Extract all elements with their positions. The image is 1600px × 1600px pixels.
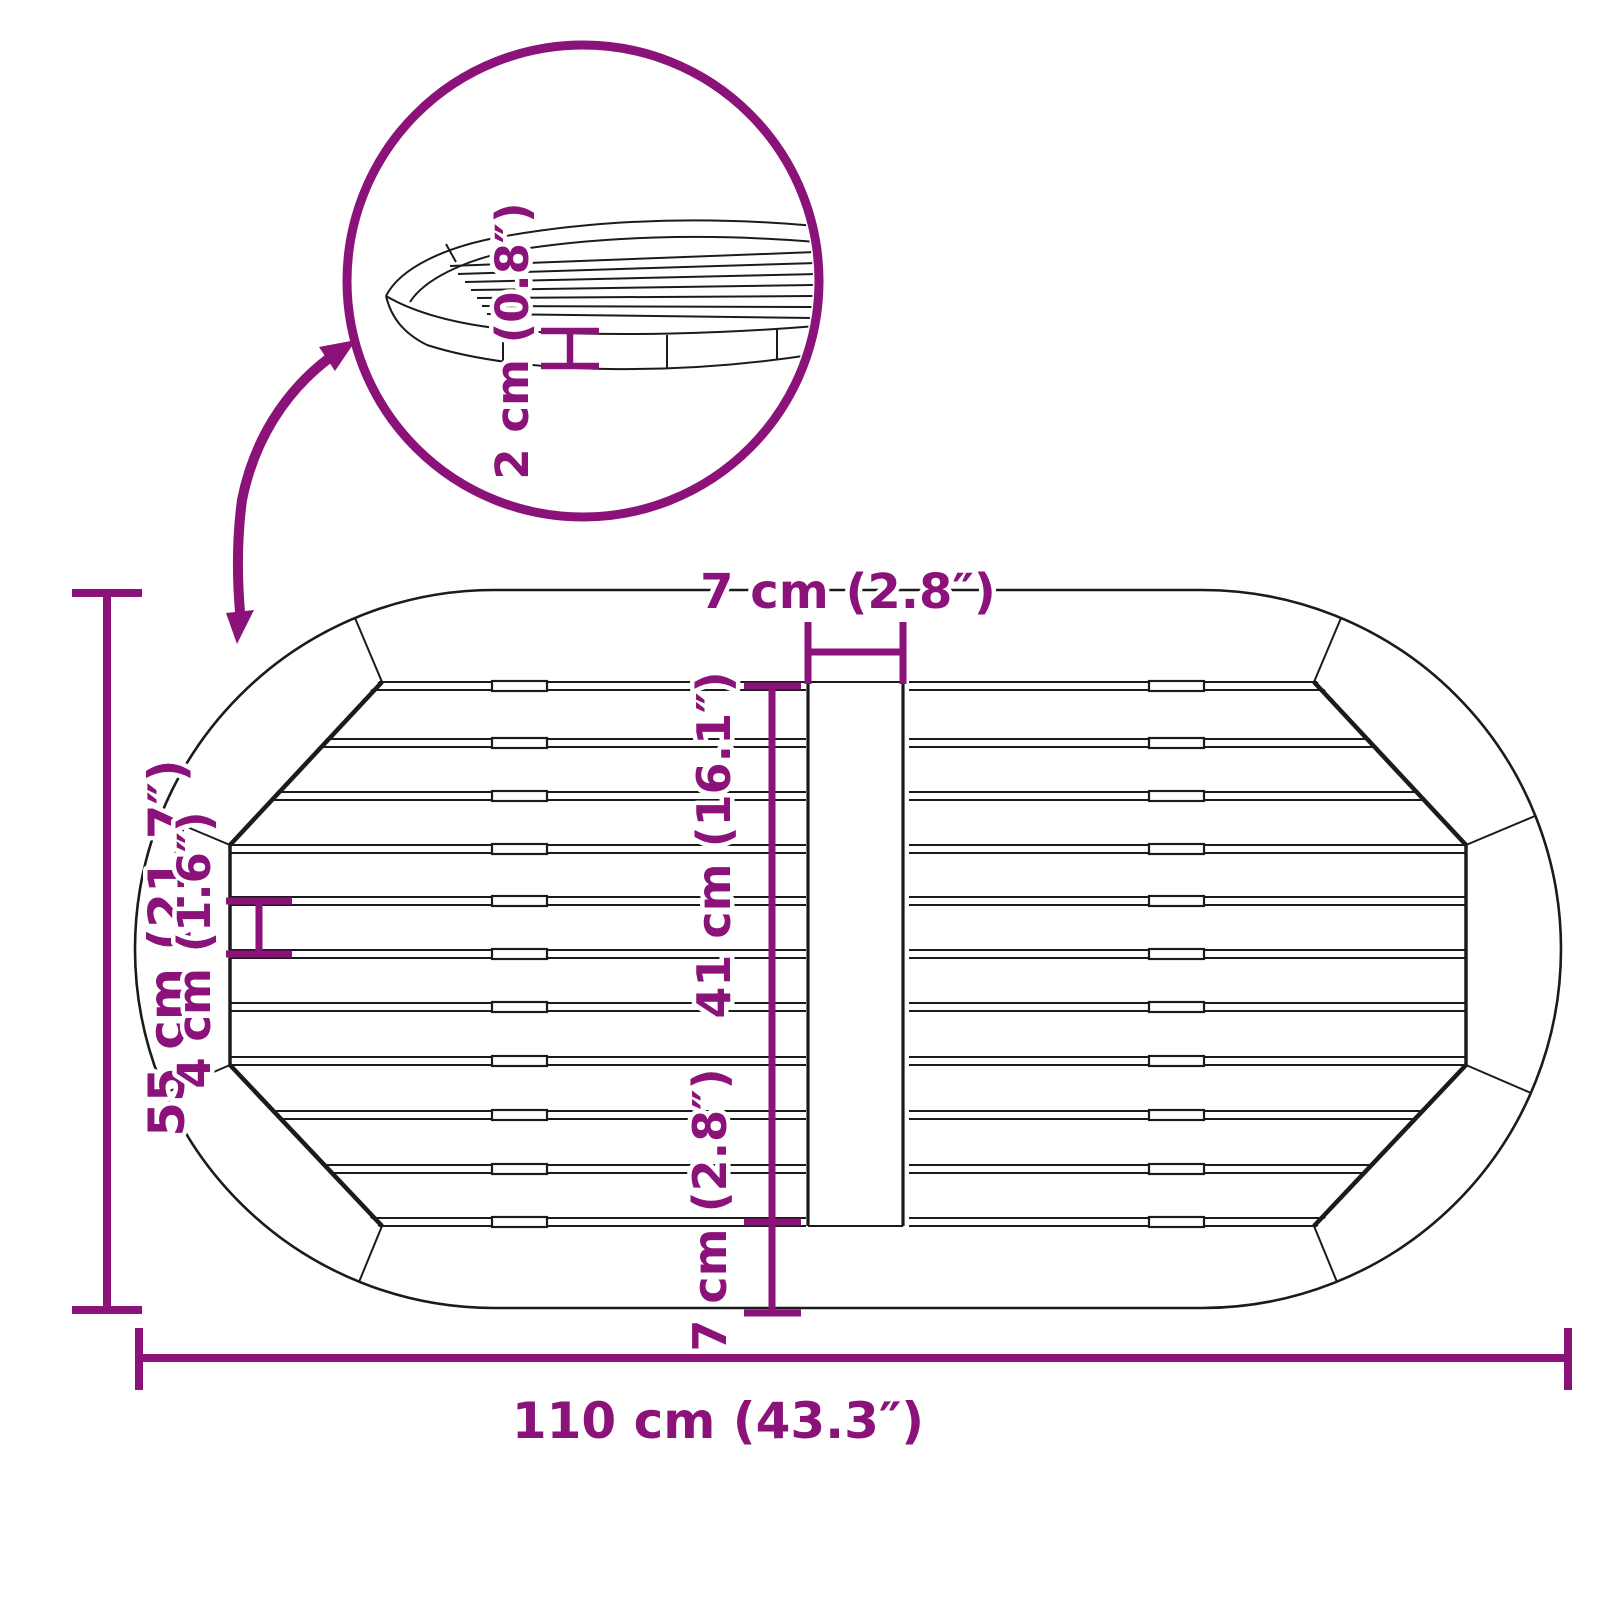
height-dimension (72, 593, 142, 1310)
zoom-arrow-head-bottom (226, 610, 254, 644)
strip-width-dimension (808, 622, 903, 684)
slat-width-dimension (226, 901, 292, 954)
slat-width-label: 4 cm (1.6″) (168, 811, 221, 1088)
detail-circle (347, 45, 819, 517)
center-strip (806, 679, 907, 1229)
bottom-rim-label: 7 cm (2.8″) (683, 1068, 737, 1351)
slat-area-label: 41 cm (16.1″) (687, 671, 741, 1018)
detail-inset: 2 cm (0.8″) (347, 45, 819, 517)
strip-width-label: 7 cm (2.8″) (700, 564, 996, 620)
thickness-label: 2 cm (0.8″) (486, 202, 539, 479)
dimension-diagram: 2 cm (0.8″) 55 cm (21.7″) 110 cm (43.3″)… (0, 0, 1600, 1600)
slat-area-dimension (744, 686, 801, 1313)
width-dimension (139, 1328, 1568, 1390)
zoom-arrow (226, 340, 356, 644)
width-label: 110 cm (43.3″) (512, 1392, 924, 1450)
table-top-plan-view (135, 590, 1561, 1308)
